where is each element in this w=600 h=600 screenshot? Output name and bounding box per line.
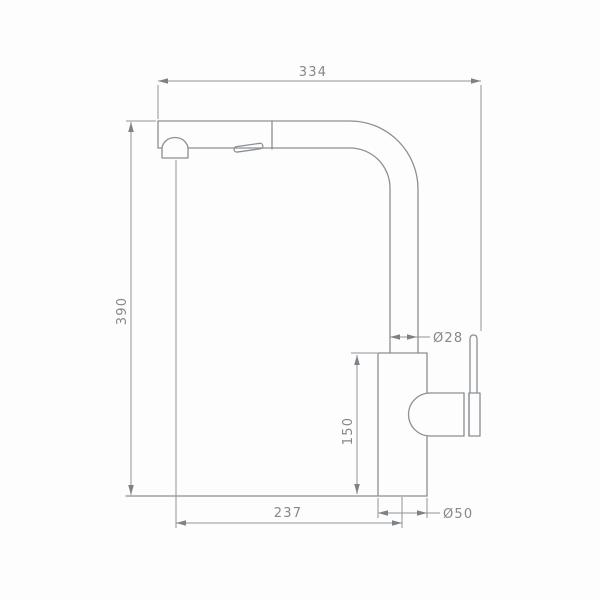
dimension-base-diameter: Ø50 (378, 498, 473, 522)
dim-334-arrow-left (158, 78, 168, 84)
dim-237-label: 237 (274, 506, 302, 521)
spout-outer-profile (158, 121, 418, 353)
dim-28-arrow-right (407, 334, 417, 340)
faucet-dimension-drawing: 334 390 Ø28 150 (0, 0, 600, 600)
dim-28-arrow-left (390, 334, 400, 340)
dimension-spout-reach: 237 (176, 160, 402, 528)
spray-head-front-edge (158, 121, 162, 148)
dimension-overall-width: 334 (158, 65, 481, 331)
dim-237-arrow-left (176, 520, 186, 526)
dim-334-arrow-right (471, 78, 481, 84)
dimension-body-height: 150 (341, 353, 377, 494)
dim-334-label: 334 (299, 65, 327, 80)
technical-drawing-canvas: 334 390 Ø28 150 (0, 0, 600, 600)
dim-150-label: 150 (341, 417, 356, 445)
dim-390-arrow-bottom (128, 485, 134, 495)
spout-inner-profile (188, 148, 390, 353)
handle-lever (470, 335, 477, 393)
dim-390-label: 390 (115, 297, 130, 325)
dim-237-arrow-right (392, 520, 402, 526)
dimension-overall-height: 390 (115, 121, 156, 495)
cartridge-housing-arc (409, 393, 431, 436)
dim-150-arrow-bottom (354, 484, 360, 494)
dim-150-arrow-top (354, 355, 360, 365)
dim-50-arrow-left (378, 510, 388, 516)
spray-nozzle-dome (162, 138, 188, 159)
dim-390-arrow-top (128, 122, 134, 132)
dim-50-label: Ø50 (443, 507, 473, 522)
faucet-outline (126, 121, 480, 496)
dim-50-arrow-right (417, 510, 427, 516)
handle-base (469, 393, 480, 436)
dimension-pipe-diameter: Ø28 (390, 331, 463, 346)
dim-28-label: Ø28 (433, 331, 463, 346)
